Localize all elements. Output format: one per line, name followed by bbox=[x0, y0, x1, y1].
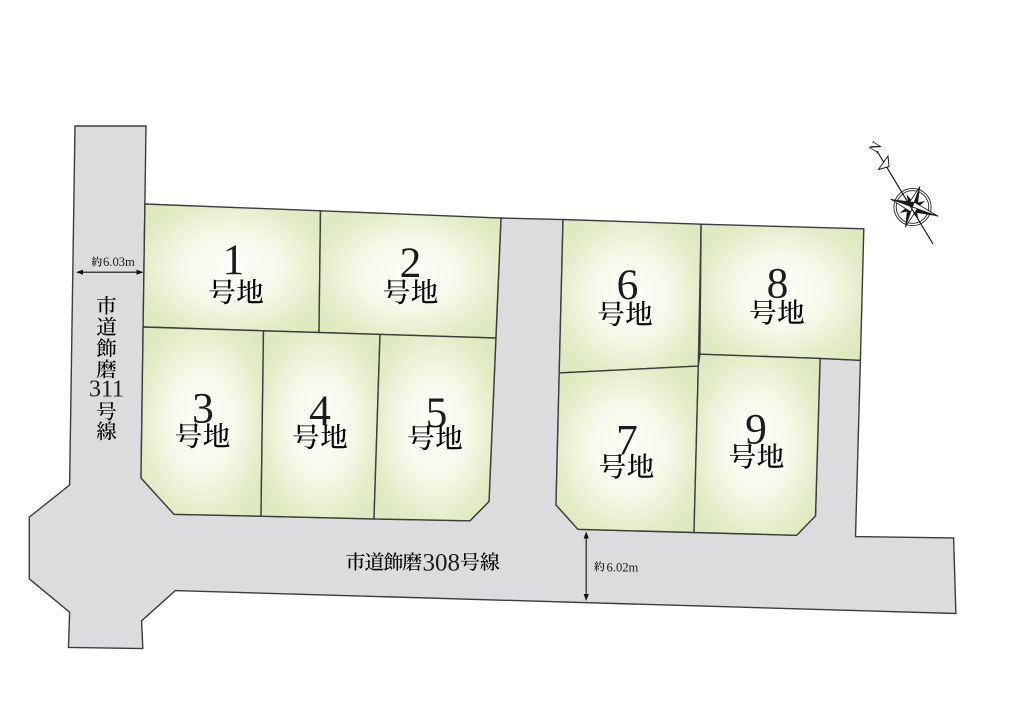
svg-text:1: 1 bbox=[223, 236, 245, 284]
svg-text:6.02m: 6.02m bbox=[607, 561, 639, 575]
svg-text:6.03m: 6.03m bbox=[103, 255, 135, 269]
svg-text:308: 308 bbox=[423, 550, 461, 577]
svg-text:9: 9 bbox=[745, 405, 767, 453]
svg-text:311: 311 bbox=[89, 377, 124, 403]
svg-text:6: 6 bbox=[617, 261, 639, 309]
svg-text:N: N bbox=[866, 138, 885, 156]
svg-text:2: 2 bbox=[400, 239, 422, 287]
